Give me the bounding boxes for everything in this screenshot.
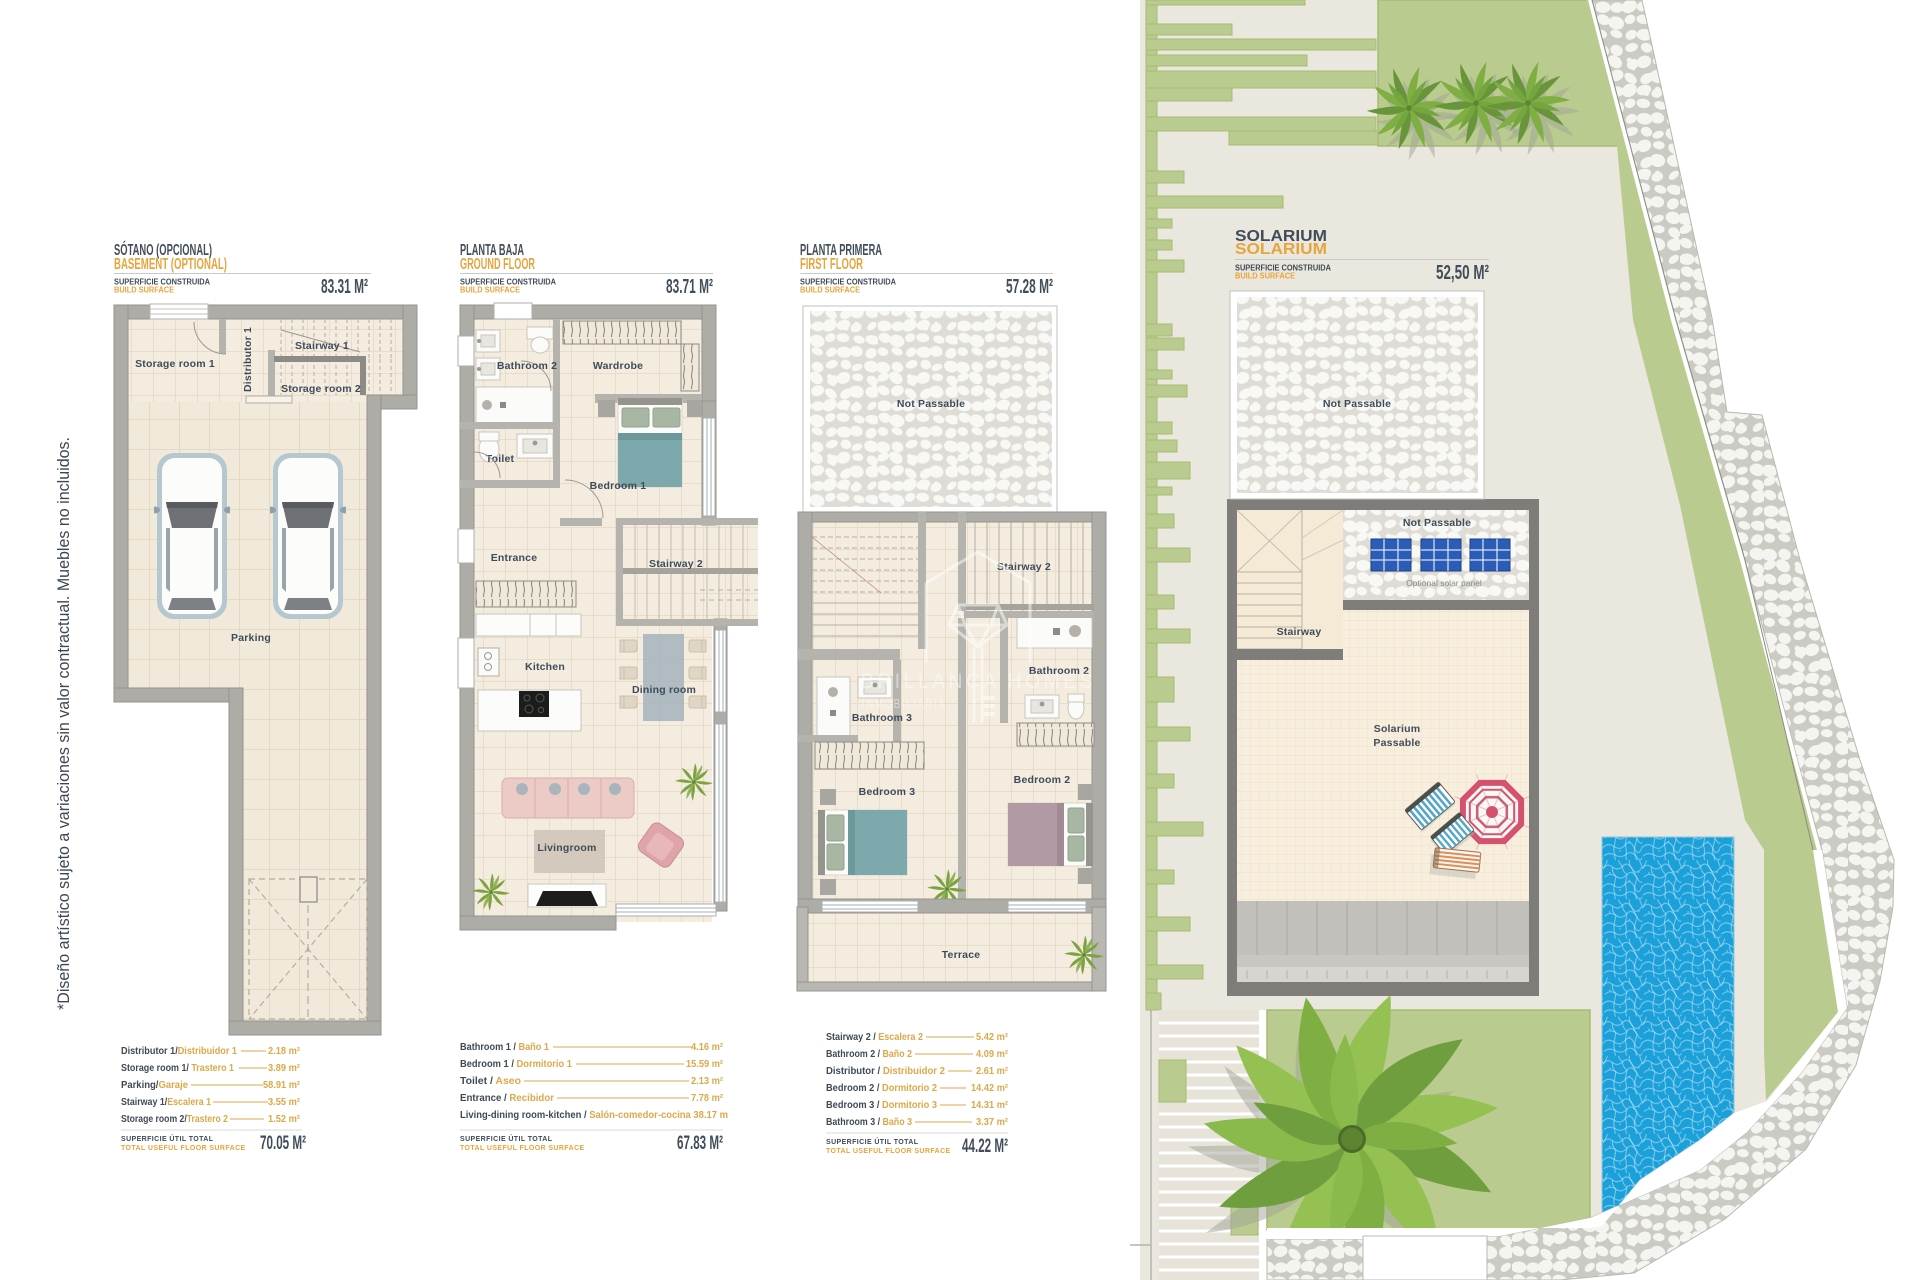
svg-text:Not Passable: Not Passable [1323,398,1391,410]
svg-text:57.28 M²: 57.28 M² [1006,276,1053,298]
svg-text:Entrance / Recibidor: Entrance / Recibidor [460,1092,554,1104]
svg-text:Bedroom 3: Bedroom 3 [859,786,916,798]
svg-text:TOTAL USEFUL FLOOR SURFACE: TOTAL USEFUL FLOOR SURFACE [826,1148,951,1155]
svg-text:TOTAL USEFUL FLOOR SURFACE: TOTAL USEFUL FLOOR SURFACE [460,1145,585,1152]
svg-text:BRILLANCA HOMES: BRILLANCA HOMES [861,670,1096,693]
svg-text:52,50 M²: 52,50 M² [1436,262,1489,284]
svg-text:BASEMENT (OPTIONAL): BASEMENT (OPTIONAL) [114,256,227,273]
svg-text:SUPERFICIE ÚTIL TOTAL: SUPERFICIE ÚTIL TOTAL [121,1134,214,1143]
svg-text:INMOBILIARIA: INMOBILIARIA [862,696,946,711]
svg-text:BUILD SURFACE: BUILD SURFACE [800,286,861,295]
svg-text:Stairway 1: Stairway 1 [295,340,349,352]
svg-text:Stairway 1/Escalera 1: Stairway 1/Escalera 1 [121,1096,211,1108]
svg-text:Stairway: Stairway [1277,626,1322,638]
svg-text:Dining room: Dining room [632,684,696,696]
svg-text:70.05 M²: 70.05 M² [260,1133,306,1154]
svg-text:Bedroom 2: Bedroom 2 [1014,774,1071,786]
svg-text:Distributor 1: Distributor 1 [242,327,254,392]
svg-text:3.89 m²: 3.89 m² [268,1062,300,1074]
svg-text:FIRST FLOOR: FIRST FLOOR [800,256,863,273]
svg-text:3.55 m²: 3.55 m² [268,1096,300,1108]
svg-text:Stairway 2 / Escalera 2: Stairway 2 / Escalera 2 [826,1031,923,1043]
svg-text:14.42 m²: 14.42 m² [971,1082,1008,1094]
svg-text:15.59 m²: 15.59 m² [686,1058,723,1070]
svg-text:Bathroom 3: Bathroom 3 [852,712,912,724]
svg-text:Livingroom: Livingroom [537,842,596,854]
svg-text:14.31 m²: 14.31 m² [971,1099,1008,1111]
svg-text:Living-dining room-kitchen / S: Living-dining room-kitchen / Salón-comed… [460,1109,728,1121]
svg-text:Toilet / Aseo: Toilet / Aseo [460,1075,521,1087]
svg-text:3.37 m²: 3.37 m² [976,1116,1008,1128]
svg-text:Distributor / Distribuidor 2: Distributor / Distribuidor 2 [826,1065,945,1077]
svg-text:Not Passable: Not Passable [1403,517,1471,529]
svg-text:Storage room 2/Trastero 2: Storage room 2/Trastero 2 [121,1113,228,1125]
svg-text:Bathroom 3 / Baño 3: Bathroom 3 / Baño 3 [826,1116,912,1128]
svg-text:Solarium: Solarium [1374,723,1421,735]
svg-text:4.16 m²: 4.16 m² [691,1041,723,1053]
svg-text:Passable: Passable [1373,737,1420,749]
svg-text:Entrance: Entrance [491,552,538,564]
svg-text:2.61 m²: 2.61 m² [976,1065,1008,1077]
svg-text:Wardrobe: Wardrobe [593,360,643,372]
svg-text:SUPERFICIE ÚTIL TOTAL: SUPERFICIE ÚTIL TOTAL [826,1137,919,1146]
svg-text:TOTAL USEFUL FLOOR SURFACE: TOTAL USEFUL FLOOR SURFACE [121,1145,246,1152]
svg-text:83.31 M²: 83.31 M² [321,276,368,298]
svg-text:BUILD SURFACE: BUILD SURFACE [460,286,521,295]
svg-text:SOLARIUM: SOLARIUM [1235,241,1327,258]
svg-text:Bedroom 1: Bedroom 1 [590,480,647,492]
svg-text:*Diseño artístico sujeto a var: *Diseño artístico sujeto a variaciones s… [54,437,73,1010]
svg-text:Distributor 1/Distribuidor 1: Distributor 1/Distribuidor 1 [121,1045,237,1057]
svg-text:GROUND FLOOR: GROUND FLOOR [460,256,535,273]
svg-text:Bathroom 2: Bathroom 2 [497,360,557,372]
svg-text:Terrace: Terrace [942,949,981,961]
svg-text:Bathroom 1 / Baño 1: Bathroom 1 / Baño 1 [460,1041,549,1053]
svg-text:SUPERFICIE ÚTIL TOTAL: SUPERFICIE ÚTIL TOTAL [460,1134,553,1143]
svg-text:Storage room 1/ Trastero 1: Storage room 1/ Trastero 1 [121,1062,234,1074]
svg-text:Bedroom 2 / Dormitorio 2: Bedroom 2 / Dormitorio 2 [826,1082,937,1094]
svg-text:67.83 M²: 67.83 M² [677,1133,723,1154]
svg-text:Bedroom 3 / Dormitorio 3: Bedroom 3 / Dormitorio 3 [826,1099,937,1111]
svg-text:2.13 m²: 2.13 m² [691,1075,723,1087]
svg-text:58.91 m²: 58.91 m² [263,1079,300,1091]
svg-text:BUILD SURFACE: BUILD SURFACE [114,286,175,295]
svg-text:Bedroom 1 / Dormitorio 1: Bedroom 1 / Dormitorio 1 [460,1058,572,1070]
svg-text:4.09 m²: 4.09 m² [976,1048,1008,1060]
svg-text:5.42 m²: 5.42 m² [976,1031,1008,1043]
svg-text:44.22 M²: 44.22 M² [962,1136,1008,1157]
svg-text:Optional solar panel: Optional solar panel [1406,578,1482,588]
svg-text:1.52 m²: 1.52 m² [268,1113,300,1125]
svg-text:Kitchen: Kitchen [525,661,565,673]
svg-text:BUILD SURFACE: BUILD SURFACE [1235,272,1296,281]
svg-text:Bathroom 2 / Baño 2: Bathroom 2 / Baño 2 [826,1048,912,1060]
svg-text:Toilet: Toilet [486,453,515,465]
svg-text:2.18 m²: 2.18 m² [268,1045,300,1057]
svg-text:Stairway 2: Stairway 2 [649,558,703,570]
svg-text:Storage room 2: Storage room 2 [281,383,361,395]
svg-text:Storage room 1: Storage room 1 [135,358,215,370]
svg-text:83.71 M²: 83.71 M² [666,276,713,298]
svg-text:7.78 m²: 7.78 m² [691,1092,723,1104]
svg-text:Parking/Garaje: Parking/Garaje [121,1079,188,1091]
svg-text:Not Passable: Not Passable [897,398,965,410]
svg-text:Parking: Parking [231,632,271,644]
